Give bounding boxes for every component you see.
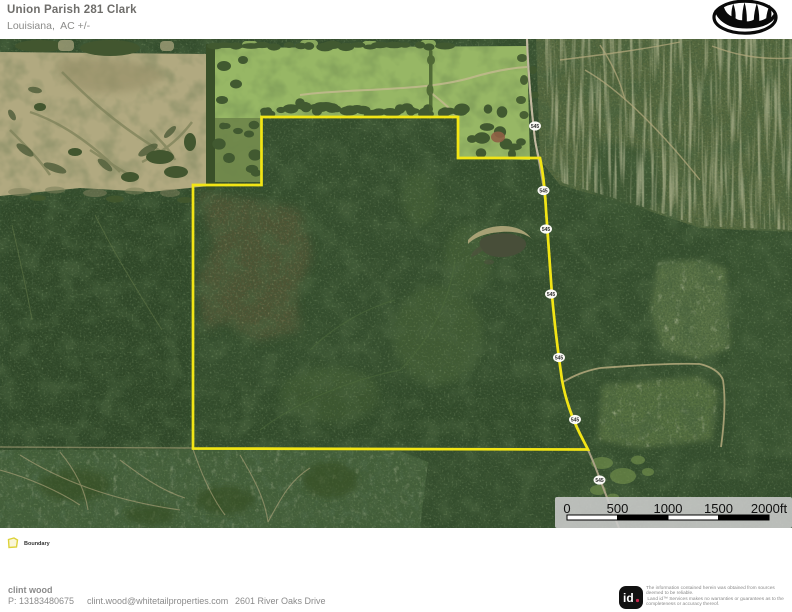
svg-text:545: 545 xyxy=(595,478,604,484)
svg-text:id: id xyxy=(623,591,634,605)
svg-text:545: 545 xyxy=(539,189,548,195)
svg-text:545: 545 xyxy=(542,227,551,233)
svg-text:2000ft: 2000ft xyxy=(751,501,788,516)
svg-text:545: 545 xyxy=(547,292,556,298)
svg-text:1500: 1500 xyxy=(704,501,733,516)
svg-text:500: 500 xyxy=(607,501,629,516)
svg-text:545: 545 xyxy=(571,418,580,424)
svg-text:1000: 1000 xyxy=(654,501,683,516)
svg-text:0: 0 xyxy=(563,501,570,516)
svg-text:545: 545 xyxy=(555,356,564,362)
svg-text:545: 545 xyxy=(531,124,540,130)
